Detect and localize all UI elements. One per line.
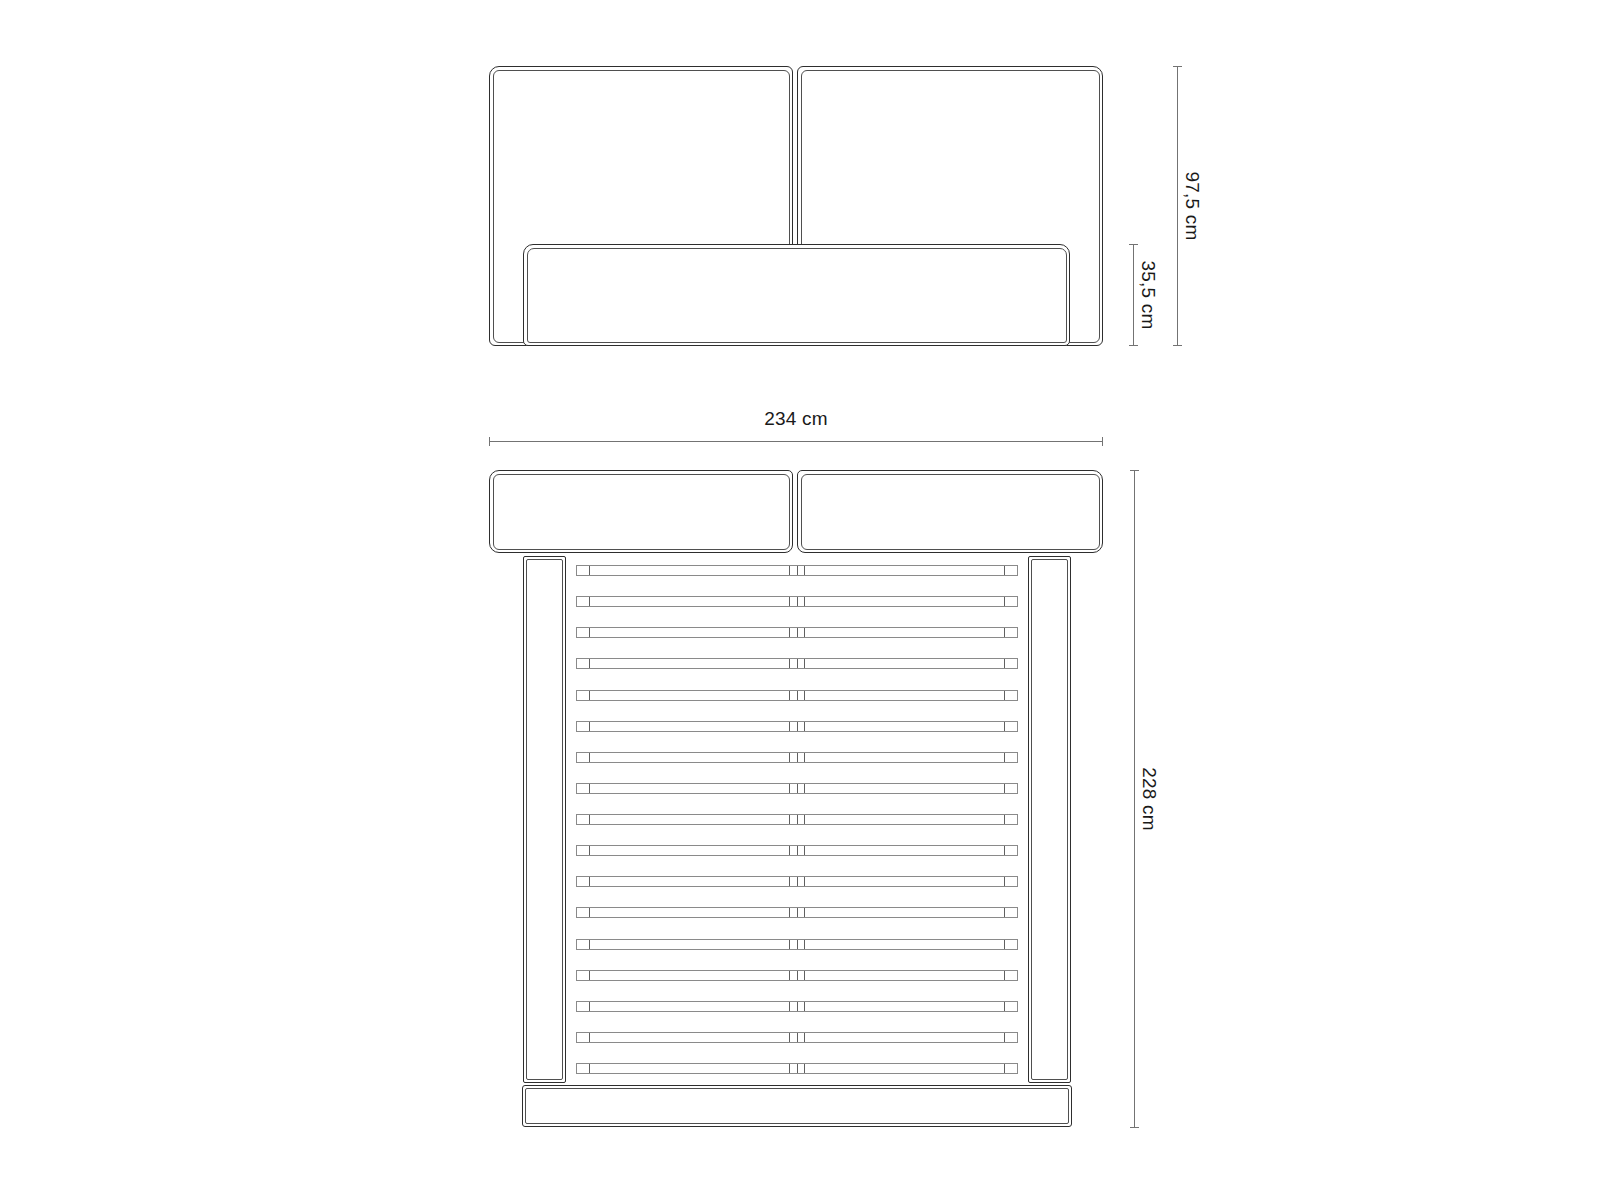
slat-end-cap xyxy=(1004,597,1017,606)
slat-center-connector xyxy=(789,753,805,762)
slat-center-connector xyxy=(789,659,805,668)
front-bed-box-inner-line xyxy=(527,248,1067,343)
dimension-line xyxy=(1177,66,1178,346)
slat xyxy=(576,1063,1018,1074)
slat xyxy=(576,939,1018,950)
dimension-tick xyxy=(1129,345,1138,346)
slat xyxy=(576,690,1018,701)
slat-center-connector xyxy=(789,722,805,731)
slat-end-cap xyxy=(577,628,590,637)
slat-end-cap xyxy=(577,1033,590,1042)
side-rail-right-inner-line xyxy=(1031,559,1068,1080)
slat-end-cap xyxy=(1004,1002,1017,1011)
dimension-tick xyxy=(1173,66,1182,67)
slat-end-cap xyxy=(577,597,590,606)
slat xyxy=(576,565,1018,576)
slat-end-cap xyxy=(1004,815,1017,824)
side-rail-right xyxy=(1028,556,1071,1083)
dimension-tick xyxy=(1129,244,1138,245)
slat xyxy=(576,876,1018,887)
slat xyxy=(576,783,1018,794)
slat-end-cap xyxy=(1004,1033,1017,1042)
slat-end-cap xyxy=(577,846,590,855)
side-rail-left xyxy=(523,556,566,1083)
slat-end-cap xyxy=(577,784,590,793)
slat-center-connector xyxy=(789,940,805,949)
slat xyxy=(576,1001,1018,1012)
slat-end-cap xyxy=(577,722,590,731)
slat-end-cap xyxy=(577,940,590,949)
slat-end-cap xyxy=(1004,971,1017,980)
slat-center-connector xyxy=(789,908,805,917)
slat-center-connector xyxy=(789,566,805,575)
slat-center-connector xyxy=(789,877,805,886)
slat xyxy=(576,721,1018,732)
slat-center-connector xyxy=(789,691,805,700)
slat-end-cap xyxy=(1004,908,1017,917)
slat-center-connector xyxy=(789,628,805,637)
dimension-label-total-height: 97,5 cm xyxy=(1181,172,1203,241)
slat-end-cap xyxy=(577,1002,590,1011)
top-headboard-right-panel xyxy=(797,470,1103,553)
slat xyxy=(576,596,1018,607)
slat-end-cap xyxy=(1004,877,1017,886)
dimension-line xyxy=(489,441,1103,442)
dimension-label-width: 234 cm xyxy=(489,408,1103,430)
slat-center-connector xyxy=(789,846,805,855)
footboard-inner-line xyxy=(525,1088,1069,1124)
slat-end-cap xyxy=(577,908,590,917)
slats xyxy=(576,565,1018,1074)
slat-end-cap xyxy=(1004,846,1017,855)
slat-end-cap xyxy=(1004,784,1017,793)
dimension-tick xyxy=(489,437,490,446)
dimension-line xyxy=(1134,470,1135,1128)
slat-end-cap xyxy=(577,566,590,575)
top-headboard-left-panel xyxy=(489,470,793,553)
slat-end-cap xyxy=(577,691,590,700)
slat xyxy=(576,814,1018,825)
slat-center-connector xyxy=(789,971,805,980)
dimension-label-depth: 228 cm xyxy=(1138,767,1160,831)
slat-end-cap xyxy=(577,753,590,762)
side-rail-left-inner-line xyxy=(526,559,563,1080)
slat-end-cap xyxy=(577,659,590,668)
slat-end-cap xyxy=(1004,566,1017,575)
slat xyxy=(576,627,1018,638)
slat-end-cap xyxy=(1004,628,1017,637)
top-headboard-left-panel-inner-line xyxy=(493,474,790,550)
slat xyxy=(576,658,1018,669)
slat xyxy=(576,1032,1018,1043)
slat-end-cap xyxy=(1004,753,1017,762)
slat-end-cap xyxy=(1004,722,1017,731)
slat-end-cap xyxy=(1004,940,1017,949)
dimension-tick xyxy=(1130,470,1139,471)
dimension-label-box-height: 35,5 cm xyxy=(1137,261,1159,330)
slat-center-connector xyxy=(789,815,805,824)
slat-end-cap xyxy=(1004,1064,1017,1073)
slat-end-cap xyxy=(577,815,590,824)
slat-end-cap xyxy=(1004,691,1017,700)
slat-center-connector xyxy=(789,1064,805,1073)
slat-end-cap xyxy=(577,877,590,886)
slat-center-connector xyxy=(789,597,805,606)
slat xyxy=(576,845,1018,856)
dimension-tick xyxy=(1173,345,1182,346)
slat xyxy=(576,970,1018,981)
dimension-tick xyxy=(1130,1127,1139,1128)
slat xyxy=(576,907,1018,918)
dimension-line xyxy=(1133,244,1134,346)
slat-center-connector xyxy=(789,1033,805,1042)
slat xyxy=(576,752,1018,763)
slat-end-cap xyxy=(577,971,590,980)
front-bed-box xyxy=(523,244,1070,346)
slat-end-cap xyxy=(577,1064,590,1073)
drawing-canvas: 35,5 cm 97,5 cm 234 cm xyxy=(0,0,1601,1201)
footboard xyxy=(522,1085,1072,1127)
slat-end-cap xyxy=(1004,659,1017,668)
slat-center-connector xyxy=(789,1002,805,1011)
top-headboard-right-panel-inner-line xyxy=(801,474,1100,550)
slat-center-connector xyxy=(789,784,805,793)
dimension-tick xyxy=(1102,437,1103,446)
